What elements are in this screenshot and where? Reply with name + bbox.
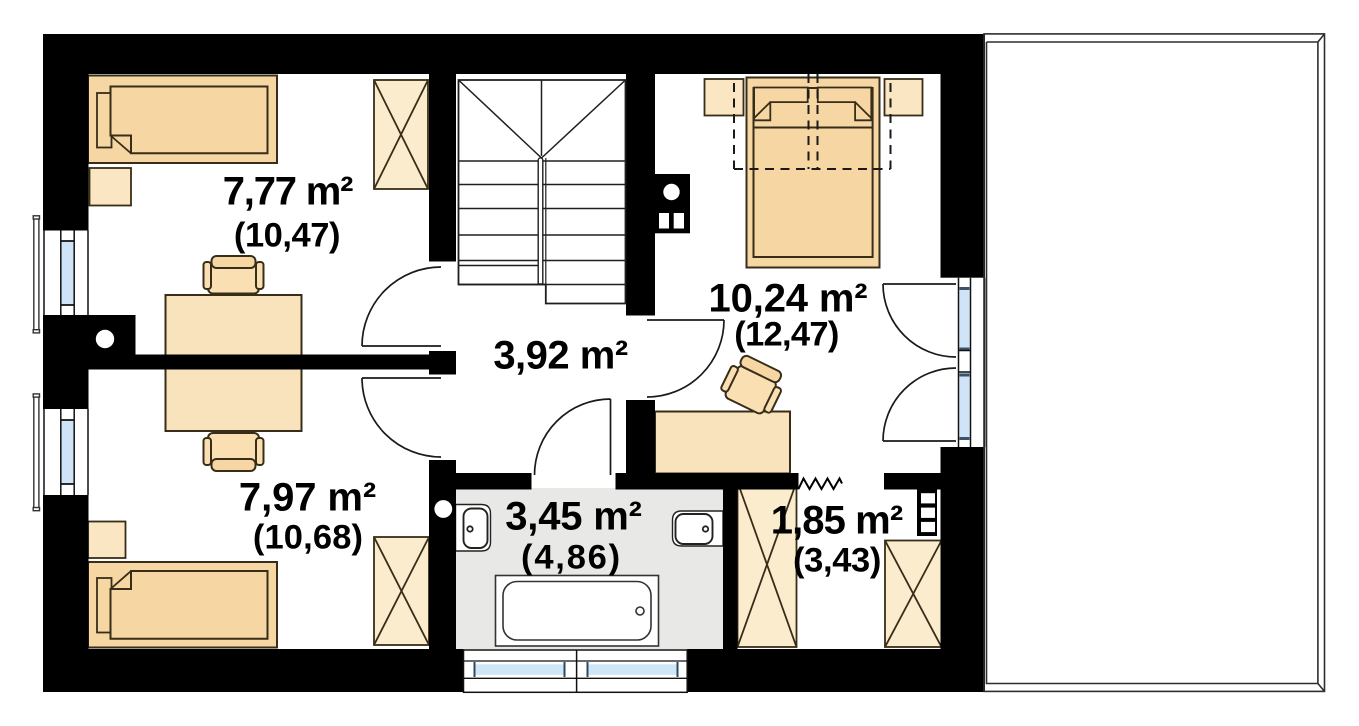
svg-text:7,77 m²: 7,77 m² bbox=[223, 170, 353, 214]
svg-text:3,45 m²: 3,45 m² bbox=[505, 495, 641, 539]
svg-text:(4,86): (4,86) bbox=[521, 539, 622, 577]
svg-text:7,97 m²: 7,97 m² bbox=[239, 476, 376, 520]
svg-text:(12,47): (12,47) bbox=[734, 316, 838, 354]
svg-text:(10,47): (10,47) bbox=[234, 217, 340, 255]
svg-text:1,85 m²: 1,85 m² bbox=[771, 499, 903, 543]
svg-text:(3,43): (3,43) bbox=[793, 542, 881, 580]
svg-text:(10,68): (10,68) bbox=[253, 519, 363, 557]
svg-text:10,24 m²: 10,24 m² bbox=[709, 277, 868, 321]
svg-text:3,92 m²: 3,92 m² bbox=[493, 334, 628, 378]
